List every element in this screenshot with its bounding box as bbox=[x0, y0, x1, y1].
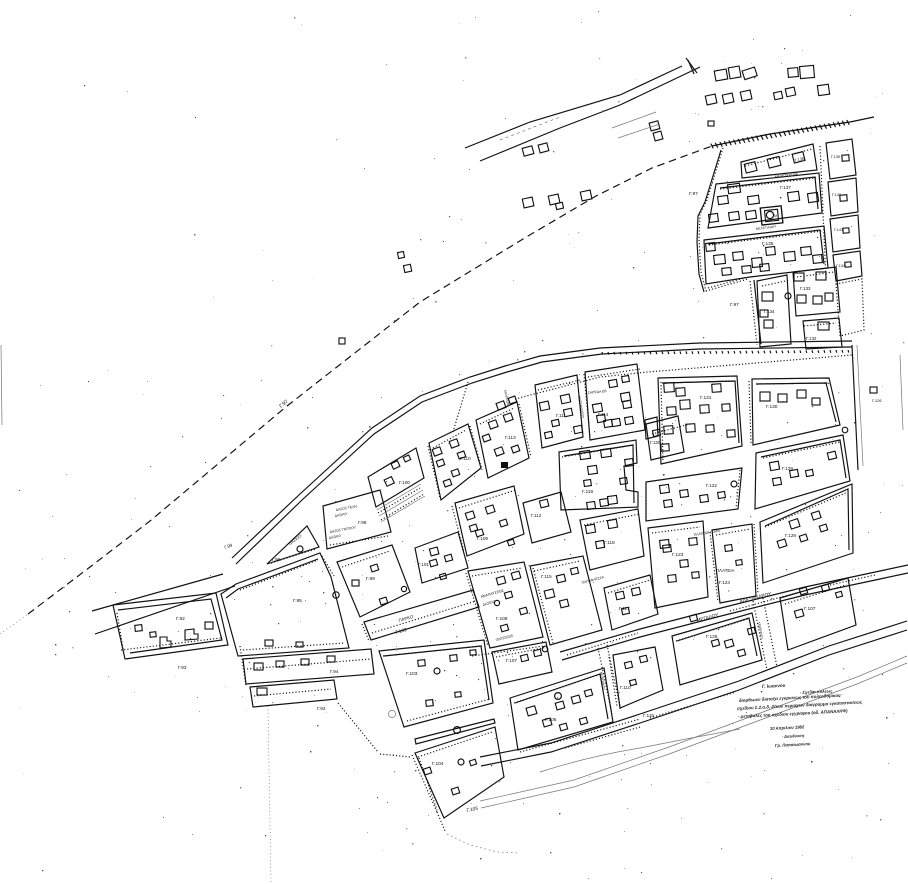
svg-text:Γ.107: Γ.107 bbox=[506, 658, 517, 663]
svg-text:Γ.120: Γ.120 bbox=[650, 440, 661, 445]
svg-text:Γ.94: Γ.94 bbox=[330, 669, 339, 674]
svg-text:Γ.113: Γ.113 bbox=[505, 435, 516, 440]
svg-text:Γ.107: Γ.107 bbox=[804, 606, 816, 612]
svg-text:Γ.103: Γ.103 bbox=[406, 671, 418, 677]
svg-text:Γ.106: Γ.106 bbox=[545, 717, 557, 723]
svg-text:Γ.137: Γ.137 bbox=[780, 185, 791, 190]
svg-text:Μ: Μ bbox=[774, 214, 777, 218]
svg-text:Γ.139: Γ.139 bbox=[831, 155, 840, 159]
svg-text:Γ.124: Γ.124 bbox=[719, 580, 730, 585]
svg-text:Γ.132: Γ.132 bbox=[806, 336, 817, 341]
svg-text:Γ.141: Γ.141 bbox=[834, 228, 843, 232]
svg-text:Γ.97: Γ.97 bbox=[689, 191, 698, 197]
svg-text:Γ.129: Γ.129 bbox=[782, 466, 793, 471]
svg-text:Γ.93: Γ.93 bbox=[178, 665, 187, 670]
svg-text:Γ.114: Γ.114 bbox=[598, 412, 609, 417]
svg-text:Γ.101: Γ.101 bbox=[418, 562, 429, 567]
svg-text:Γ.95: Γ.95 bbox=[293, 598, 302, 604]
svg-text:Γ.100: Γ.100 bbox=[399, 480, 410, 485]
svg-text:Γ.98: Γ.98 bbox=[358, 520, 367, 525]
svg-text:ΠΛΑΤΕΙΑ: ΠΛΑΤΕΙΑ bbox=[716, 568, 735, 573]
svg-text:Γ.97: Γ.97 bbox=[730, 302, 739, 308]
svg-text:Γ.108: Γ.108 bbox=[496, 616, 508, 622]
svg-text:Γ.115: Γ.115 bbox=[541, 574, 552, 579]
svg-text:Γ.125: Γ.125 bbox=[706, 634, 718, 640]
svg-text:Γ.131: Γ.131 bbox=[700, 395, 712, 401]
svg-text:Γ.93: Γ.93 bbox=[317, 706, 326, 711]
svg-text:Γ.112: Γ.112 bbox=[531, 513, 542, 518]
svg-text:Γ.99: Γ.99 bbox=[366, 576, 375, 582]
svg-text:Γ.123: Γ.123 bbox=[672, 552, 684, 558]
svg-text:Γ.130: Γ.130 bbox=[766, 404, 778, 410]
svg-text:Γ.122: Γ.122 bbox=[706, 483, 717, 488]
svg-text:Γ.128: Γ.128 bbox=[785, 533, 796, 538]
svg-text:Γ.109: Γ.109 bbox=[477, 536, 488, 541]
svg-text:Γ.118: Γ.118 bbox=[604, 540, 615, 545]
svg-text:Γ.119: Γ.119 bbox=[582, 489, 593, 495]
svg-text:Γ.115: Γ.115 bbox=[643, 713, 654, 719]
svg-text:Γ.104: Γ.104 bbox=[432, 761, 444, 767]
svg-text:Γ.110: Γ.110 bbox=[620, 685, 631, 690]
svg-text:Γ.134: Γ.134 bbox=[836, 264, 845, 268]
svg-text:Γ.96: Γ.96 bbox=[272, 557, 281, 562]
svg-text:Γ.111: Γ.111 bbox=[556, 413, 566, 418]
svg-text:Γ.133: Γ.133 bbox=[800, 286, 811, 291]
svg-text:Γ.126: Γ.126 bbox=[872, 398, 882, 403]
svg-text:Γ.92: Γ.92 bbox=[176, 616, 185, 622]
